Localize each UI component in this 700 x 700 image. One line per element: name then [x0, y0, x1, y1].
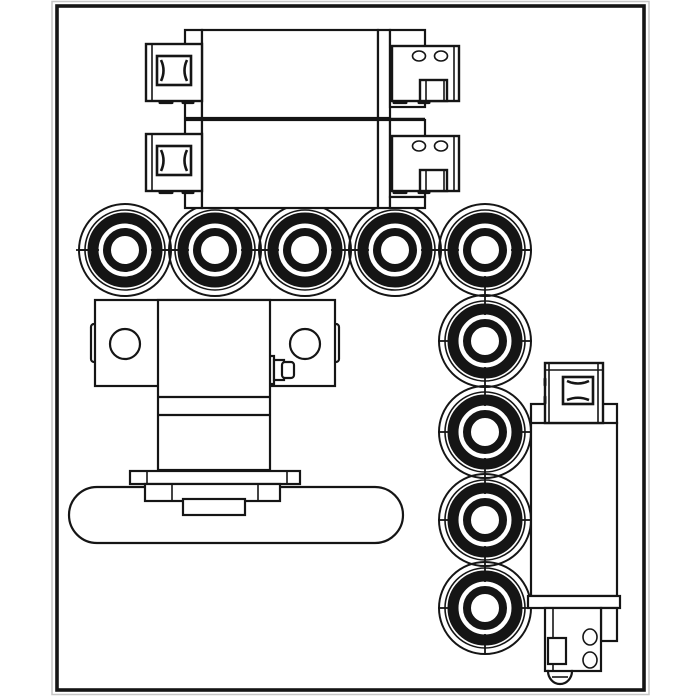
roller-bearing	[438, 474, 532, 566]
roller-bearing	[348, 204, 442, 296]
din-connector-top	[545, 363, 603, 423]
lower-tab	[548, 638, 566, 664]
mounting-block	[91, 300, 339, 470]
solenoid-body	[531, 404, 617, 596]
roller-bearing	[438, 295, 532, 387]
center-stem	[158, 300, 270, 470]
unit2-extension	[390, 197, 425, 208]
roller-bearing	[258, 204, 352, 296]
technical-drawing-canvas	[0, 0, 700, 700]
roller-bearing	[438, 204, 532, 296]
roller-bearing	[78, 204, 172, 296]
roller-bearing	[438, 562, 532, 654]
bearings-layer	[78, 204, 532, 654]
bottom-band	[528, 596, 620, 608]
valve-unit-2	[146, 120, 459, 208]
solenoid-cartridge	[528, 363, 620, 684]
lower-step	[601, 608, 617, 641]
valve-unit-1	[146, 30, 459, 118]
roller-bearing	[168, 204, 262, 296]
base-plate	[69, 471, 403, 543]
roller-bearing	[438, 386, 532, 478]
